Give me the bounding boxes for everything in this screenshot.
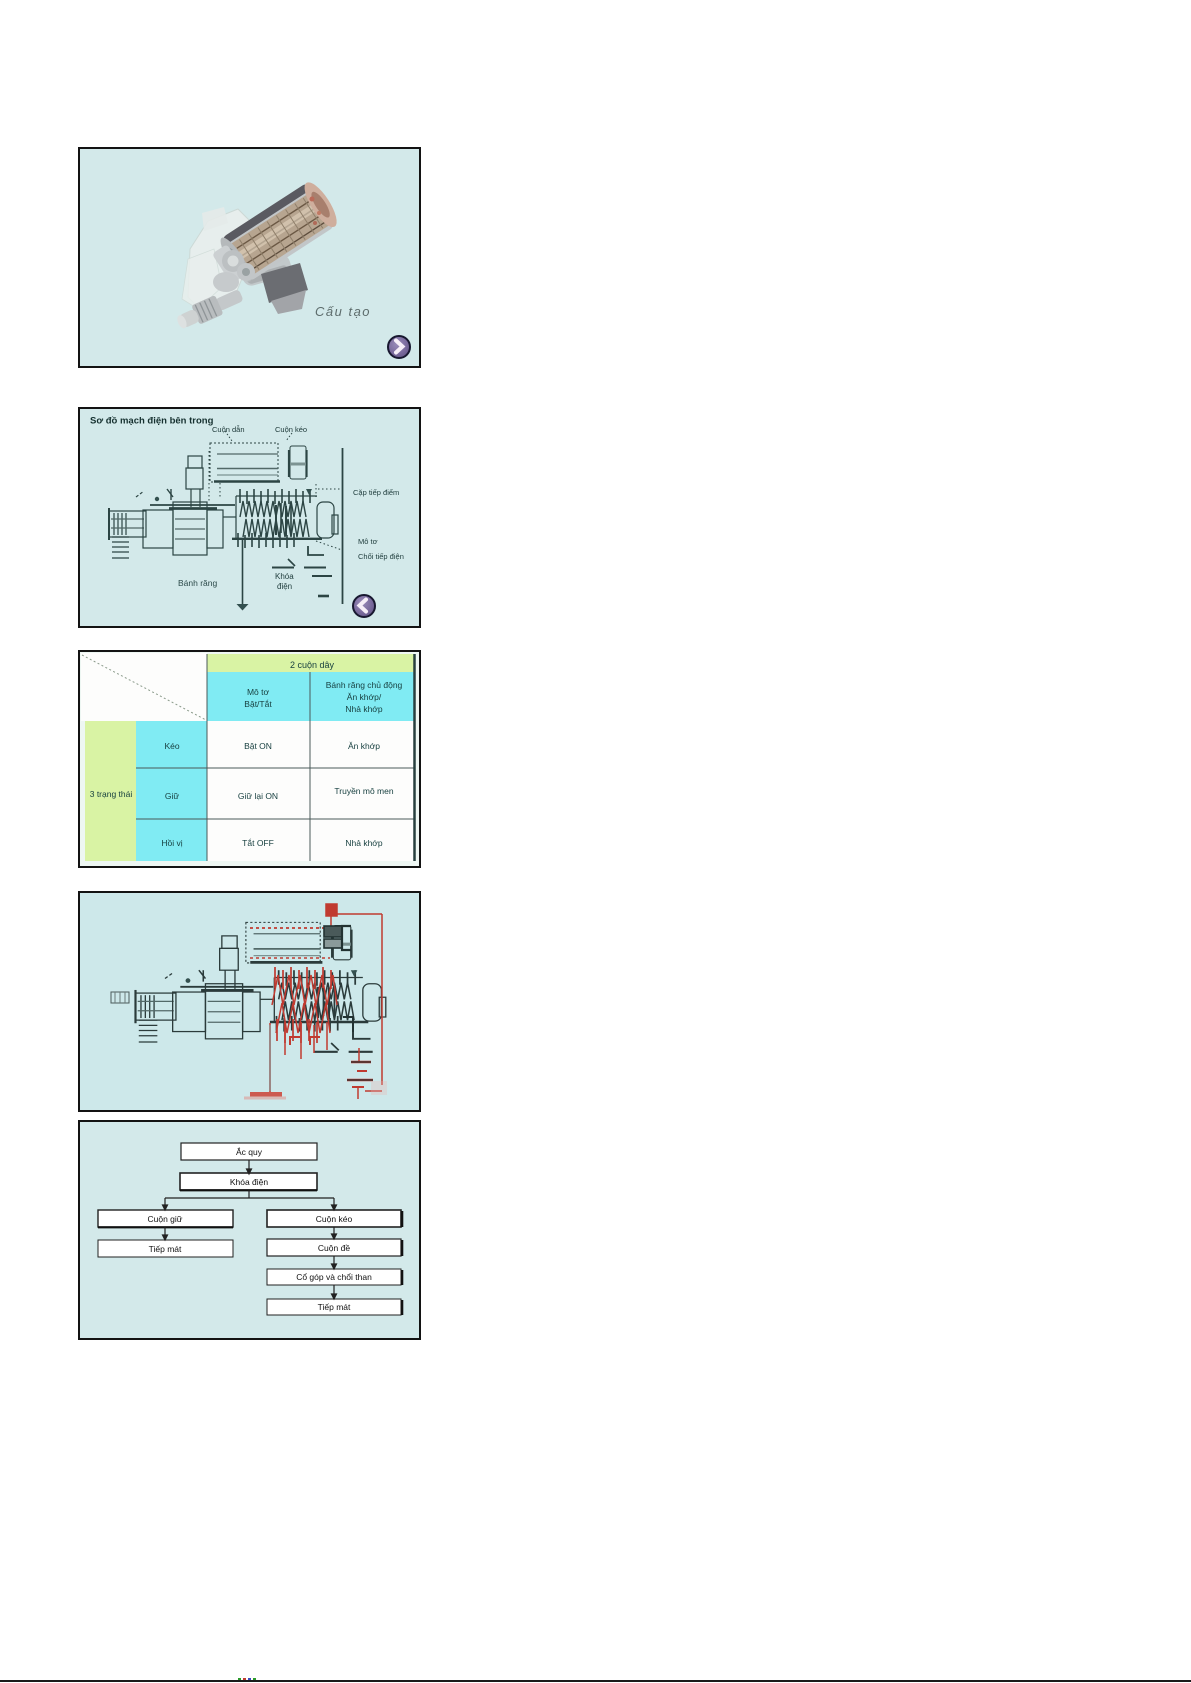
svg-text:Nhả khớp: Nhả khớp xyxy=(345,704,383,714)
svg-text:Cuộn đề: Cuộn đề xyxy=(318,1243,350,1253)
svg-text:Mô tơ: Mô tơ xyxy=(358,537,378,546)
svg-text:Cuộn kéo: Cuộn kéo xyxy=(275,425,307,434)
svg-text:Sơ đồ mạch điện bên trong: Sơ đồ mạch điện bên trong xyxy=(90,416,214,427)
svg-text:3 trạng thái: 3 trạng thái xyxy=(90,789,133,799)
svg-text:Chổi tiếp điện: Chổi tiếp điện xyxy=(358,552,404,561)
svg-text:Khóa: Khóa xyxy=(275,572,294,581)
svg-text:Mô tơ: Mô tơ xyxy=(247,687,270,697)
svg-text:Kéo: Kéo xyxy=(164,741,179,751)
svg-text:Khóa điện: Khóa điện xyxy=(230,1177,269,1187)
svg-text:Giữ lại ON: Giữ lại ON xyxy=(238,791,278,801)
svg-text:điện: điện xyxy=(277,582,292,591)
svg-text:Cổ góp và chổi than: Cổ góp và chổi than xyxy=(296,1272,372,1282)
svg-text:Ăn khớp/: Ăn khớp/ xyxy=(347,692,382,702)
svg-text:Cuộn giữ: Cuộn giữ xyxy=(148,1214,183,1224)
svg-text:Bật/Tắt: Bật/Tắt xyxy=(244,699,272,709)
svg-text:Bánh răng chủ động: Bánh răng chủ động xyxy=(326,680,403,690)
svg-text:Cấu tạo: Cấu tạo xyxy=(315,304,371,319)
svg-text:Ắc quy: Ắc quy xyxy=(236,1147,263,1157)
svg-text:Bánh răng: Bánh răng xyxy=(178,578,217,588)
svg-text:Tắt OFF: Tắt OFF xyxy=(242,838,274,848)
svg-text:Tiếp mát: Tiếp mát xyxy=(149,1244,182,1254)
svg-text:Tiếp mát: Tiếp mát xyxy=(318,1302,351,1312)
svg-text:Giữ: Giữ xyxy=(165,791,180,801)
svg-text:Hồi vị: Hồi vị xyxy=(161,838,182,848)
svg-text:Cặp tiếp điểm: Cặp tiếp điểm xyxy=(353,488,399,497)
svg-text:2 cuộn dây: 2 cuộn dây xyxy=(290,660,335,670)
svg-text:Truyền mô men: Truyền mô men xyxy=(334,786,393,796)
svg-text:Cuộn dẫn: Cuộn dẫn xyxy=(212,425,245,434)
svg-text:Nhả khớp: Nhả khớp xyxy=(345,838,383,848)
svg-text:Ăn khớp: Ăn khớp xyxy=(348,741,380,751)
svg-text:Cuộn kéo: Cuộn kéo xyxy=(316,1214,353,1224)
svg-text:Bật ON: Bật ON xyxy=(244,741,272,751)
